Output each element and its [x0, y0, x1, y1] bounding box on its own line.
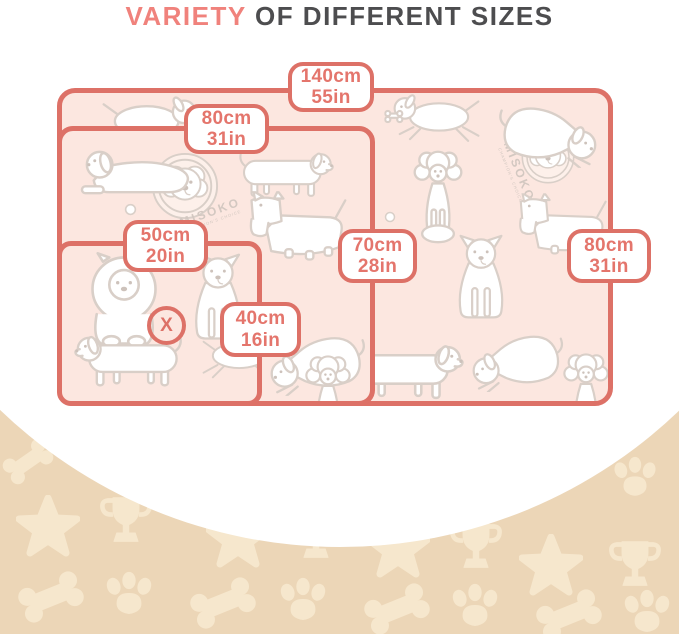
title-highlight: VARIETY	[125, 1, 246, 31]
size-in: 31in	[589, 256, 628, 277]
stretching-dog-illustration	[470, 328, 568, 392]
ball-illustration	[124, 203, 137, 216]
size-in: 28in	[358, 256, 397, 277]
paw-icon	[612, 455, 658, 496]
size-label-80cm-right: 80cm 31in	[567, 229, 651, 283]
size-label-140cm: 140cm 55in	[288, 62, 374, 112]
bone-icon	[13, 565, 90, 629]
bone-icon	[185, 571, 262, 634]
size-in: 55in	[311, 87, 350, 108]
x-marker-symbol: X	[160, 315, 173, 337]
stretching-dog-illustration	[494, 99, 599, 168]
page-title: VARIETY OF DIFFERENT SIZES	[0, 0, 679, 32]
size-in: 31in	[207, 129, 246, 150]
title-rest: OF DIFFERENT SIZES	[246, 1, 553, 31]
size-in: 20in	[146, 246, 185, 267]
paw-icon	[104, 570, 154, 614]
bone-icon	[359, 577, 436, 634]
size-label-50cm: 50cm 20in	[123, 220, 208, 272]
size-label-70cm: 70cm 28in	[338, 229, 417, 283]
paw-icon	[278, 576, 328, 620]
size-cm: 140cm	[301, 66, 362, 87]
size-cm: 40cm	[236, 308, 286, 329]
star-icon	[519, 534, 583, 596]
trophy-icon	[607, 538, 663, 590]
size-label-80cm-top: 80cm 31in	[184, 104, 269, 154]
x-marker: X	[147, 306, 186, 345]
lying-dachshund-illustration	[78, 147, 196, 204]
ball-illustration	[384, 211, 396, 223]
paw-icon	[622, 588, 672, 632]
running-dog-with-bone-illustration	[384, 93, 489, 146]
size-comparison-infographic: VARIETY OF DIFFERENT SIZES MISOKO CHAMPI…	[0, 0, 679, 634]
size-cm: 50cm	[141, 225, 191, 246]
size-cm: 70cm	[353, 235, 403, 256]
size-label-40cm: 40cm 16in	[220, 302, 301, 357]
poodle-illustration	[410, 148, 466, 245]
star-icon	[16, 495, 80, 557]
poodle-illustration	[302, 353, 354, 406]
sitting-dog-illustration	[450, 233, 512, 322]
paw-icon	[450, 582, 500, 626]
size-cm: 80cm	[202, 108, 252, 129]
poodle-illustration	[560, 351, 612, 406]
size-in: 16in	[241, 330, 280, 351]
size-cm: 80cm	[584, 235, 634, 256]
